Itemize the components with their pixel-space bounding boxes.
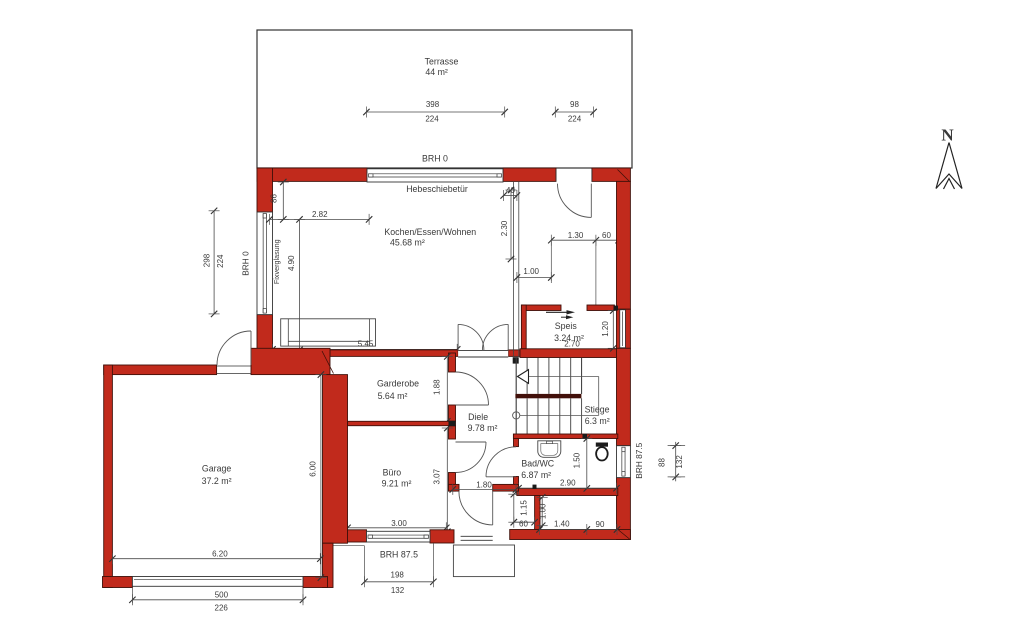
- svg-text:6.00: 6.00: [309, 461, 318, 477]
- svg-text:Hebeschiebetür: Hebeschiebetür: [406, 184, 468, 194]
- svg-text:Stiege: Stiege: [585, 405, 610, 415]
- svg-text:3.00: 3.00: [391, 519, 407, 528]
- svg-text:1.50: 1.50: [573, 452, 582, 468]
- svg-text:BRH 0: BRH 0: [422, 154, 448, 164]
- svg-text:86: 86: [269, 194, 278, 203]
- svg-text:9.78 m²: 9.78 m²: [468, 423, 498, 433]
- svg-text:98: 98: [570, 100, 579, 109]
- svg-text:45.68 m²: 45.68 m²: [390, 238, 425, 248]
- svg-text:1.15: 1.15: [520, 500, 529, 516]
- svg-text:1.88: 1.88: [433, 379, 442, 395]
- svg-text:1.30: 1.30: [568, 231, 584, 240]
- svg-text:224: 224: [216, 254, 225, 268]
- svg-text:Kochen/Essen/Wohnen: Kochen/Essen/Wohnen: [384, 227, 476, 237]
- svg-text:Speis: Speis: [555, 321, 578, 331]
- svg-text:BRH 87.5: BRH 87.5: [634, 442, 644, 478]
- svg-text:1.00: 1.00: [539, 503, 548, 519]
- svg-text:1.80: 1.80: [476, 481, 492, 490]
- svg-text:132: 132: [391, 586, 405, 595]
- svg-text:Fixverglasung: Fixverglasung: [272, 239, 281, 284]
- svg-text:BRH 87.5: BRH 87.5: [380, 549, 418, 559]
- svg-text:1.40: 1.40: [554, 520, 570, 529]
- svg-text:2.82: 2.82: [312, 210, 328, 219]
- svg-text:Bad/WC: Bad/WC: [521, 459, 554, 469]
- svg-text:226: 226: [215, 603, 229, 612]
- svg-text:Diele: Diele: [468, 412, 488, 422]
- svg-text:37.2 m²: 37.2 m²: [202, 476, 232, 486]
- svg-text:Terrasse: Terrasse: [425, 56, 459, 66]
- svg-text:6.87 m²: 6.87 m²: [521, 470, 551, 480]
- svg-text:2.90: 2.90: [560, 479, 576, 488]
- svg-text:Garage: Garage: [202, 463, 231, 473]
- svg-text:132: 132: [675, 455, 684, 469]
- svg-text:BRH 0: BRH 0: [241, 251, 251, 276]
- svg-text:5.64 m²: 5.64 m²: [378, 391, 408, 401]
- svg-text:Büro: Büro: [383, 468, 402, 478]
- svg-text:198: 198: [391, 571, 405, 580]
- svg-text:44 m²: 44 m²: [425, 67, 448, 77]
- svg-text:298: 298: [203, 253, 212, 267]
- svg-text:224: 224: [568, 115, 582, 124]
- svg-text:398: 398: [426, 100, 440, 109]
- svg-text:6.3 m²: 6.3 m²: [585, 416, 610, 426]
- svg-text:5.45: 5.45: [358, 339, 374, 348]
- svg-text:Garderobe: Garderobe: [377, 378, 419, 388]
- svg-text:2.30: 2.30: [500, 220, 509, 236]
- svg-text:60: 60: [602, 231, 611, 240]
- svg-text:60: 60: [519, 519, 528, 528]
- svg-text:1.20: 1.20: [601, 321, 610, 337]
- svg-text:3.07: 3.07: [433, 468, 442, 484]
- svg-text:88: 88: [658, 458, 667, 467]
- svg-text:1.00: 1.00: [523, 267, 539, 276]
- svg-text:6.20: 6.20: [212, 550, 228, 559]
- svg-text:N: N: [941, 126, 954, 145]
- svg-text:2.70: 2.70: [564, 339, 580, 348]
- svg-text:224: 224: [425, 115, 439, 124]
- svg-text:500: 500: [215, 591, 229, 600]
- svg-text:90: 90: [596, 520, 605, 529]
- svg-text:4.90: 4.90: [287, 255, 296, 271]
- svg-text:9.21 m²: 9.21 m²: [382, 479, 412, 489]
